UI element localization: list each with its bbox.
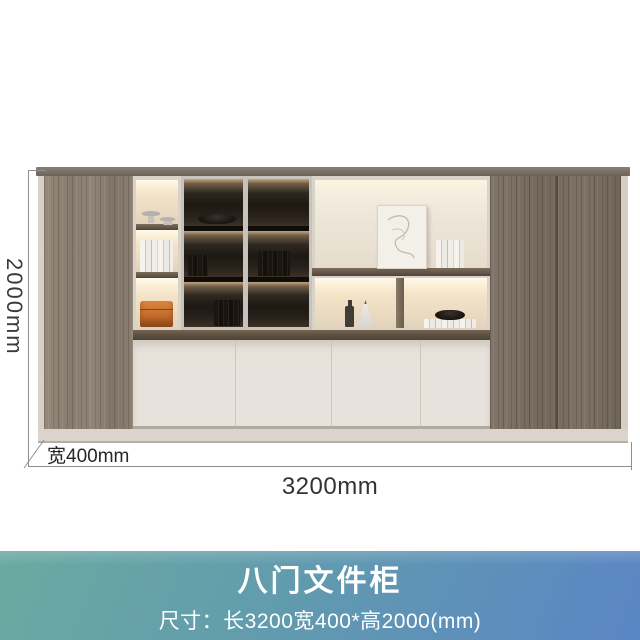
glass-cell	[248, 179, 309, 226]
bottom-door	[236, 340, 332, 426]
bottom-door	[332, 340, 421, 426]
glass-cabinet-books	[188, 255, 208, 276]
bowl-on-books	[435, 310, 465, 320]
countertop	[133, 330, 490, 340]
glass-cabinet-bowl	[198, 214, 236, 224]
shelf-divider	[396, 278, 404, 328]
standing-books	[436, 240, 464, 268]
glass-cabinet-books	[258, 251, 290, 276]
bottom-door	[421, 340, 490, 426]
cabinet-top-strip	[36, 167, 630, 176]
art-print-sketch	[378, 206, 426, 268]
glass-cabinet-books	[214, 300, 240, 326]
bottom-door-row	[133, 340, 490, 426]
product-banner: 八门文件柜 尺寸：长3200宽400*高2000(mm)	[0, 551, 640, 640]
bottom-door	[133, 340, 236, 426]
glass-cell	[248, 282, 309, 327]
product-photo: 2000mm 宽400mm 3200mm	[0, 0, 640, 540]
white-book-stack	[140, 240, 173, 272]
dimension-height-label: 2000mm	[1, 258, 27, 356]
right-wood-door	[490, 176, 621, 431]
pedestal-dish	[160, 217, 175, 221]
dark-bottle	[345, 306, 354, 327]
left-wood-door	[44, 176, 133, 429]
art-print	[377, 205, 427, 269]
cabinet-right-frame-edge	[621, 176, 628, 431]
dimension-depth-label: 宽400mm	[47, 441, 129, 468]
dimension-width-label: 3200mm	[28, 473, 632, 501]
shelf-cell	[315, 278, 396, 328]
glass-door-mullion	[243, 179, 248, 327]
orange-storage-box	[140, 301, 173, 327]
product-size-line: 尺寸：长3200宽400*高2000(mm)	[159, 605, 482, 635]
right-door-seam	[556, 176, 558, 431]
tray-books	[424, 319, 476, 328]
product-title: 八门文件柜	[238, 556, 403, 600]
pedestal-dish	[142, 211, 160, 216]
